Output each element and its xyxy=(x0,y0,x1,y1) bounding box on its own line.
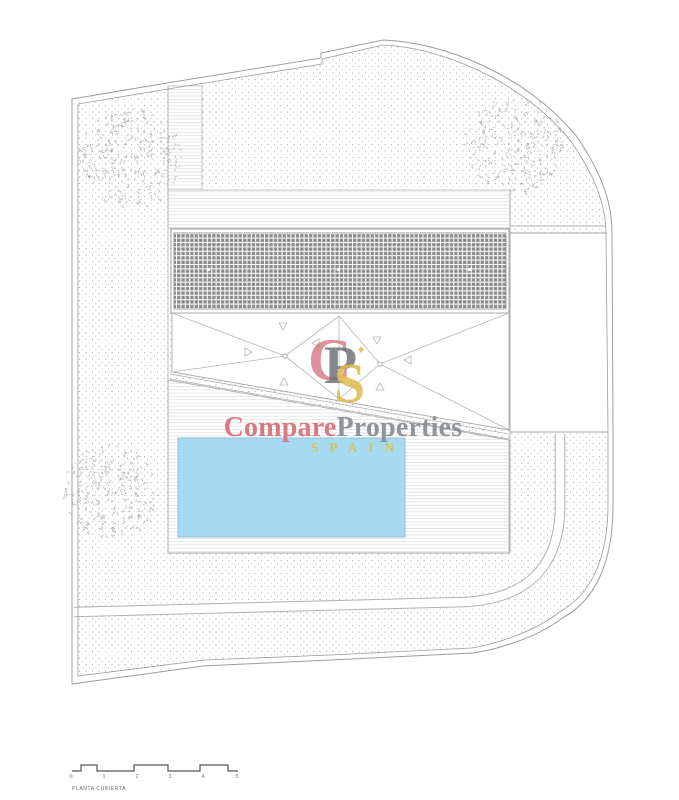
logo-star-icon: ✦ xyxy=(356,344,366,356)
panel-marker xyxy=(468,268,471,271)
watermark-brand-properties: Properties xyxy=(336,412,462,443)
watermark-brand-compare: Compare xyxy=(224,412,337,443)
scale-tick-3: 3 xyxy=(168,774,171,780)
side-court xyxy=(510,226,608,432)
scale-tick-1: 1 xyxy=(102,774,105,780)
scale-tick-5: 5 xyxy=(235,774,238,780)
solar-panel-band xyxy=(171,229,509,313)
ridge-node xyxy=(283,354,287,358)
ridge-node xyxy=(378,362,382,366)
scale-tick-2: 2 xyxy=(135,774,138,780)
drawing-title: PLANTA CUBIERTA xyxy=(72,786,126,792)
panel-marker xyxy=(337,268,340,271)
scale-tick-4: 4 xyxy=(201,774,204,780)
site-plan-page: C P S ✦ CompareProperties SPAIN 0 1 2 3 … xyxy=(0,0,679,800)
scale-tick-0: 0 xyxy=(69,774,72,780)
watermark-subtitle: SPAIN xyxy=(311,440,406,456)
panel-marker xyxy=(207,268,210,271)
scale-bar xyxy=(72,765,238,771)
logo-monogram-s: S xyxy=(334,356,365,412)
